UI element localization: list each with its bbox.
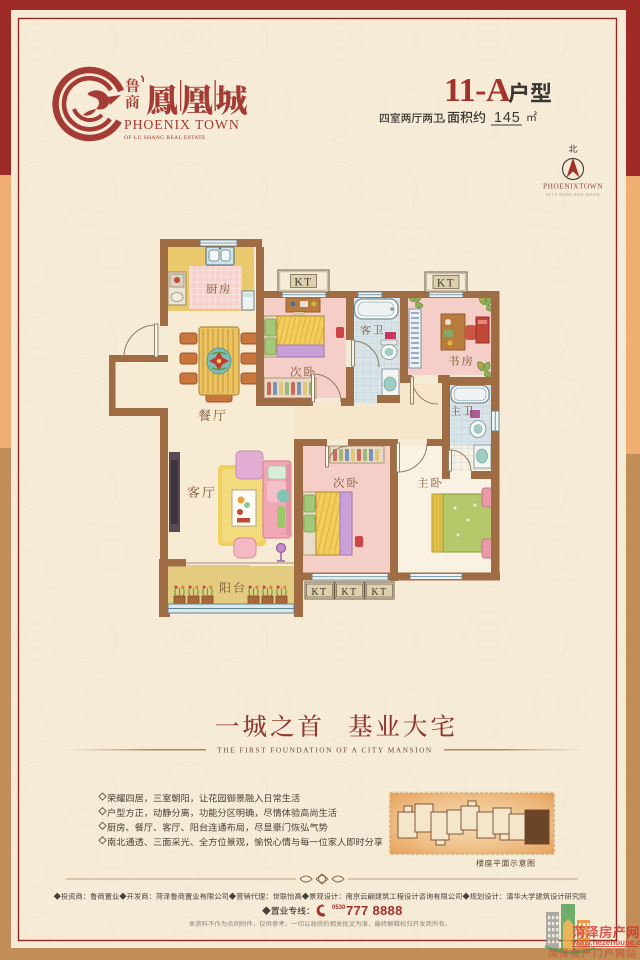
svg-text:KT: KT (371, 587, 387, 598)
svg-text:PHOENIX TOWN: PHOENIX TOWN (124, 117, 240, 132)
svg-text:OF LU SHANG REAL ESTATE: OF LU SHANG REAL ESTATE (124, 135, 206, 141)
svg-text:KT: KT (311, 587, 327, 598)
svg-text:THE FIRST FOUNDATION OF A CIT: THE FIRST FOUNDATION OF A CITY MANSION (217, 746, 433, 755)
svg-text:777 8888: 777 8888 (346, 903, 403, 918)
svg-text:0530: 0530 (332, 905, 346, 911)
svg-text:KT: KT (341, 587, 357, 598)
svg-text:KT: KT (437, 278, 455, 290)
svg-text:PHOENIXTOWN: PHOENIXTOWN (543, 182, 603, 191)
svg-text:11-A: 11-A (444, 72, 511, 109)
svg-text:145: 145 (494, 110, 521, 126)
svg-text:KT: KT (294, 277, 312, 289)
svg-text:www.hezehouse.com: www.hezehouse.com (571, 938, 640, 947)
svg-text:OF LU SHANG REAL ESTATE: OF LU SHANG REAL ESTATE (546, 193, 601, 197)
